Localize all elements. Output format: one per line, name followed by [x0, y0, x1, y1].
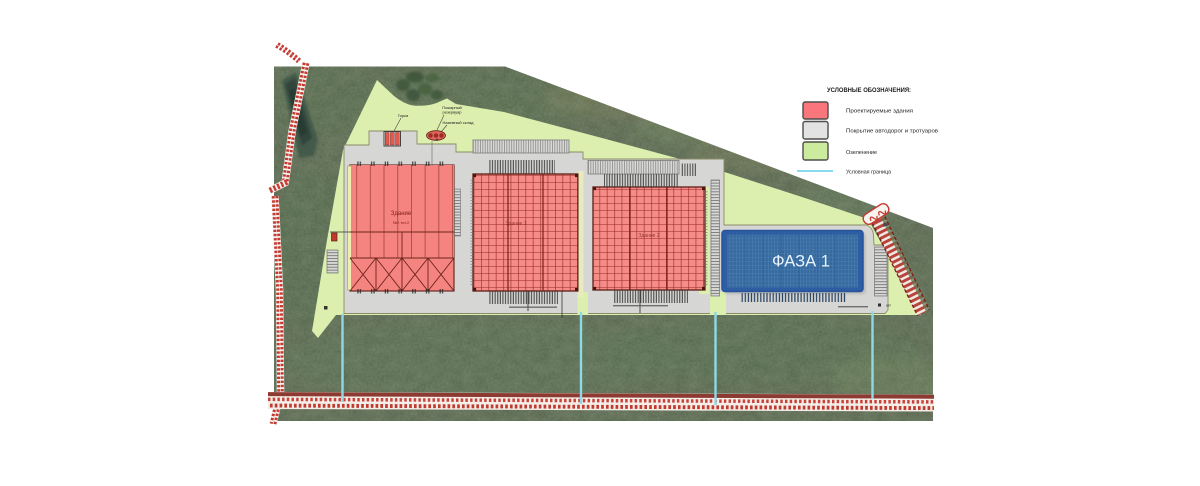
svg-text:Здание 1: Здание 1 [505, 221, 526, 227]
svg-text:Условная граница: Условная граница [846, 170, 892, 176]
svg-text:Проектируемые здания: Проектируемые здания [846, 109, 913, 115]
svg-text:Озеленение: Озеленение [846, 150, 878, 156]
svg-text:Здание: Здание [391, 211, 412, 217]
svg-text:Здание 2: Здание 2 [638, 233, 659, 239]
svg-text:авт: авт [886, 304, 891, 308]
svg-text:ФАЗА 1: ФАЗА 1 [772, 253, 830, 271]
svg-text:№2 тит.2: №2 тит.2 [393, 220, 410, 225]
svg-text:Горка: Горка [398, 113, 409, 118]
svg-text:Наземный склад: Наземный склад [443, 120, 475, 125]
svg-text:УСЛОВНЫЕ ОБОЗНАЧЕНИЯ:: УСЛОВНЫЕ ОБОЗНАЧЕНИЯ: [827, 87, 911, 94]
svg-text:резервуар: резервуар [442, 110, 462, 115]
svg-text:Покрытие автодорог и тротуаров: Покрытие автодорог и тротуаров [846, 129, 938, 135]
